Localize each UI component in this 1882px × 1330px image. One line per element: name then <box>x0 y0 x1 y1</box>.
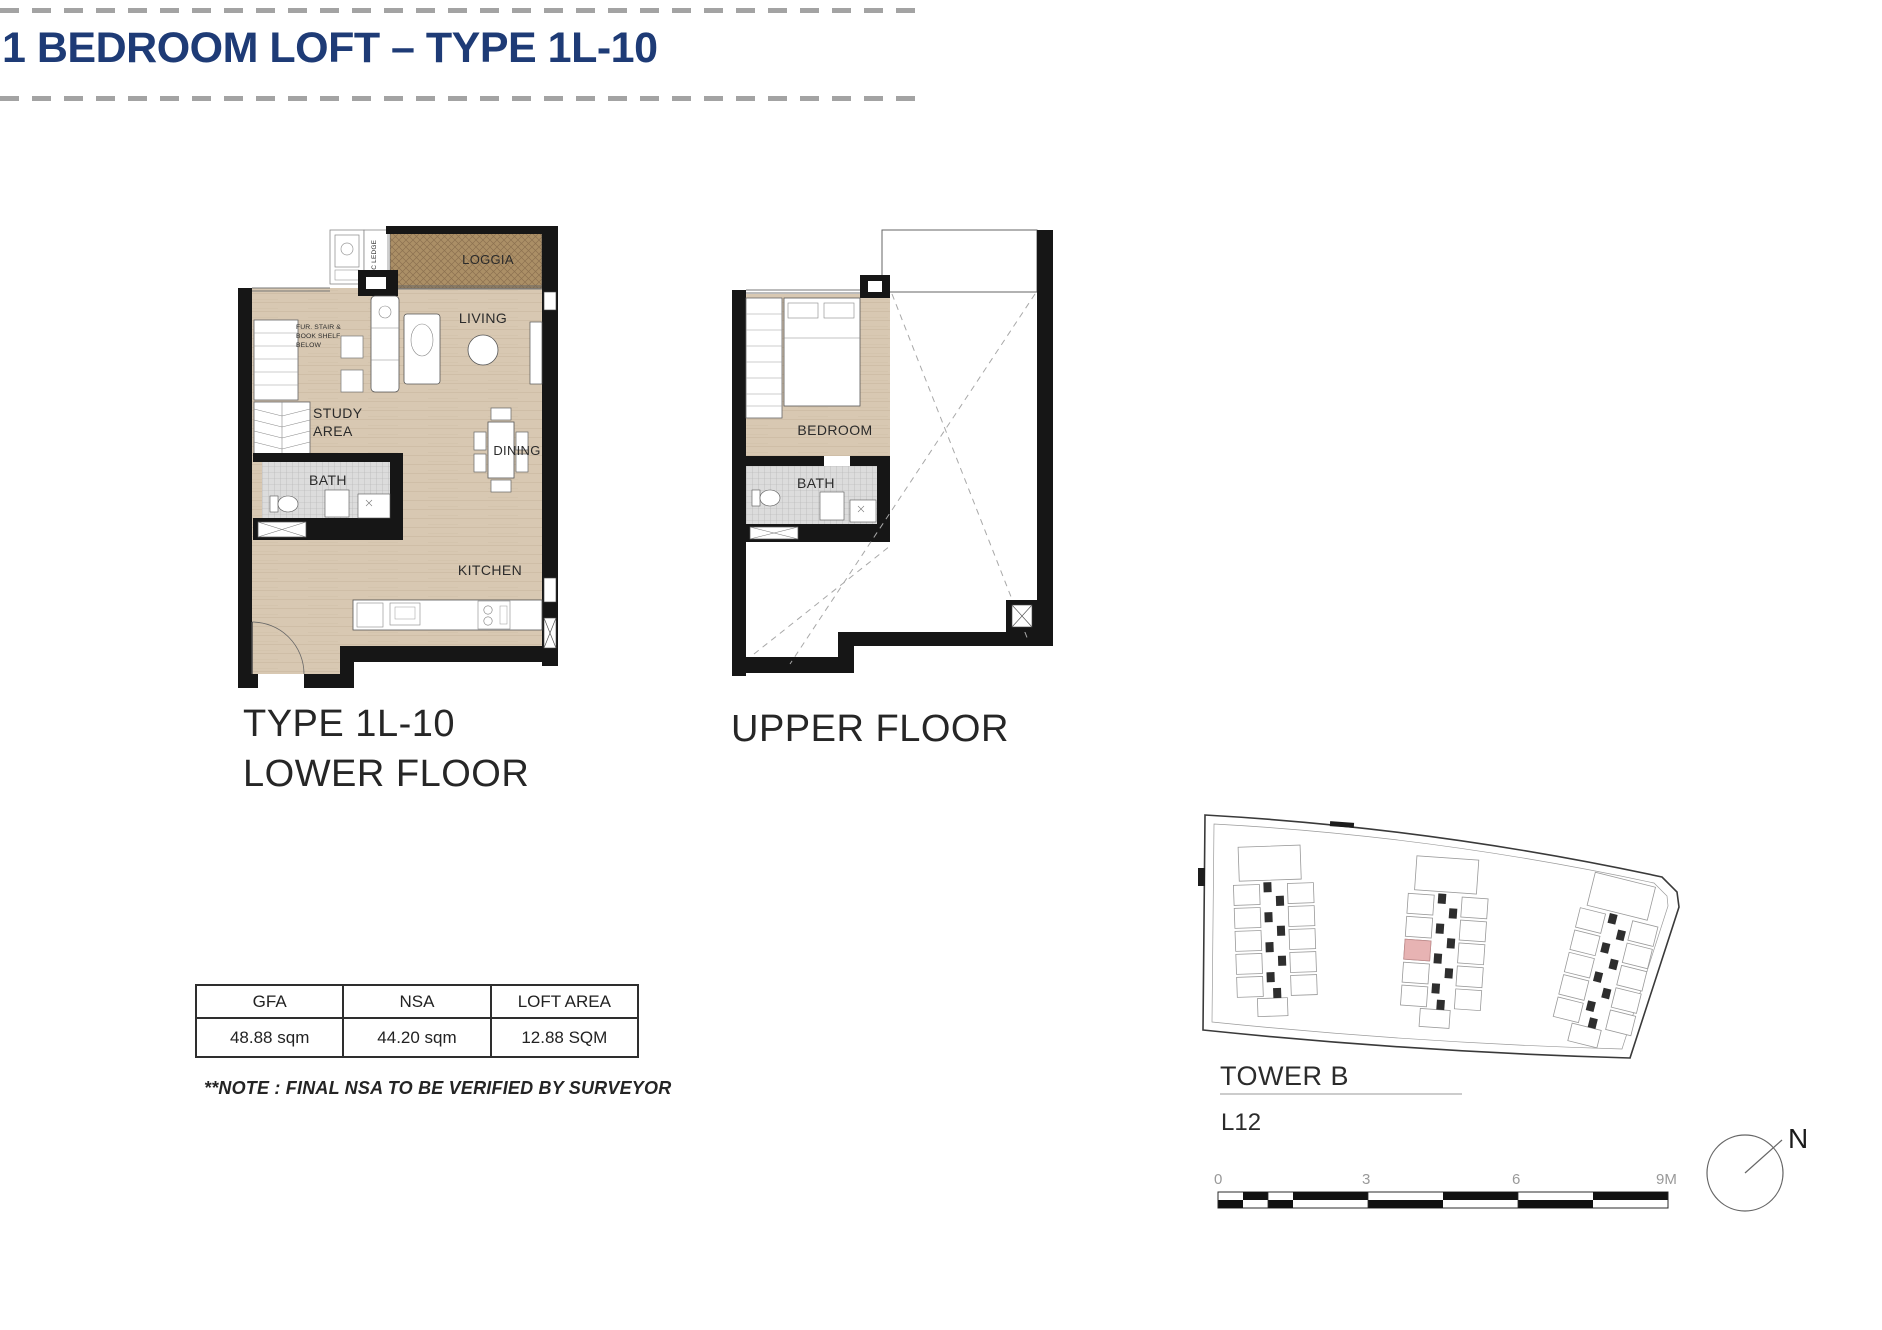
svg-text:BELOW: BELOW <box>296 342 322 349</box>
lower-bath-label: BATH <box>309 472 347 488</box>
bedroom-window-wall <box>746 290 860 293</box>
nsa-value: 44.20 sqm <box>343 1018 490 1057</box>
roof-outline <box>882 230 1037 292</box>
scale-tick-6: 6 <box>1512 1171 1520 1188</box>
scale-tick-0: 0 <box>1214 1171 1222 1188</box>
kitchen-counter <box>353 600 542 630</box>
bedroom-label: BEDROOM <box>797 422 872 438</box>
upper-bath <box>746 456 890 542</box>
gfa-header: GFA <box>196 985 343 1018</box>
north-compass: N <box>1707 1123 1808 1211</box>
floorplan-page: { "header": { "title": "1 BEDROOM LOFT –… <box>0 0 1882 1330</box>
lower-plan-caption-type: TYPE 1L-10 <box>243 703 455 746</box>
tower-label: TOWER B <box>1220 1061 1349 1091</box>
study-label-1: STUDY <box>313 405 363 421</box>
upper-plan-caption: UPPER FLOOR <box>731 708 1009 751</box>
area-table-header-row: GFA NSA LOFT AREA <box>196 985 638 1018</box>
gfa-value: 48.88 sqm <box>196 1018 343 1057</box>
wall-vent <box>366 277 386 289</box>
area-table-value-row: 48.88 sqm 44.20 sqm 12.88 SQM <box>196 1018 638 1057</box>
tv-console <box>530 322 542 384</box>
svg-text:BOOK SHELF: BOOK SHELF <box>296 333 340 340</box>
highlighted-unit <box>1404 939 1431 961</box>
key-plan: TOWER B L12 0 3 6 9M N <box>1190 800 1830 1280</box>
book-shelf <box>254 320 298 400</box>
svg-text:FUR. STAIR &: FUR. STAIR & <box>296 324 341 331</box>
loggia-label: LOGGIA <box>462 252 514 267</box>
scale-tick-9m: 9M <box>1656 1171 1677 1188</box>
upper-stairs <box>746 298 782 418</box>
loft-area-value: 12.88 SQM <box>491 1018 638 1057</box>
lower-floor-plan: LOGGIA AC LEDGE <box>238 226 568 696</box>
kitchen-label: KITCHEN <box>458 562 522 578</box>
ac-ledge-label: AC LEDGE <box>371 239 378 274</box>
upper-floor-plan: BEDROOM BATH <box>728 226 1058 676</box>
surveyor-note: **NOTE : FINAL NSA TO BE VERIFIED BY SUR… <box>204 1078 671 1099</box>
living-label: LIVING <box>459 310 507 326</box>
nsa-header: NSA <box>343 985 490 1018</box>
stairs <box>254 402 310 458</box>
coffee-table <box>468 335 498 365</box>
corner-column <box>1006 600 1038 632</box>
loft-area-header: LOFT AREA <box>491 985 638 1018</box>
area-table: GFA NSA LOFT AREA 48.88 sqm 44.20 sqm 12… <box>195 984 639 1058</box>
scale-bar: 0 3 6 9M <box>1214 1171 1677 1208</box>
header-bottom-dashed-rule <box>0 96 916 101</box>
armchair <box>404 314 440 384</box>
scale-tick-3: 3 <box>1362 1171 1370 1188</box>
bed <box>784 298 860 406</box>
dining-label: DINING <box>493 443 540 458</box>
lower-bath <box>253 453 403 540</box>
lower-plan-caption-floor: LOWER FLOOR <box>243 753 529 796</box>
upper-bath-label: BATH <box>797 475 835 491</box>
sofa <box>371 296 399 392</box>
wall-vent <box>868 281 882 292</box>
north-label: N <box>1788 1123 1808 1154</box>
header-top-dashed-rule <box>0 8 916 13</box>
level-label: L12 <box>1221 1109 1261 1136</box>
study-label-2: AREA <box>313 423 353 439</box>
page-title: 1 BEDROOM LOFT – TYPE 1L-10 <box>2 24 912 73</box>
